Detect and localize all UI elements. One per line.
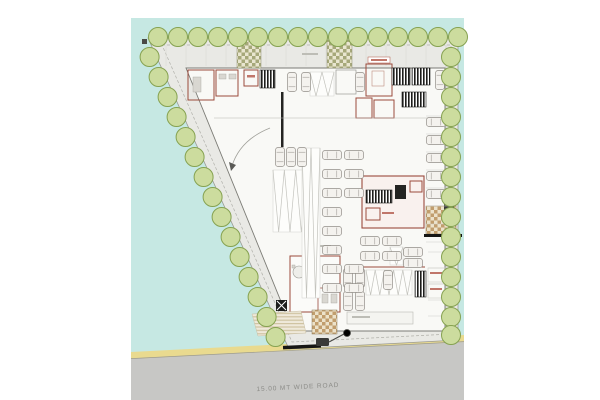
tree-icon [167, 108, 186, 127]
shear-wall [281, 92, 284, 147]
illegible-annotation [247, 75, 255, 78]
tree-icon [248, 288, 267, 307]
tree-icon [149, 68, 168, 87]
car-icon [276, 148, 285, 167]
illegible-annotation [430, 288, 442, 290]
wc-fixture [219, 74, 226, 79]
tree-icon [209, 28, 228, 47]
tree-icon [442, 188, 461, 207]
tree-icon [176, 128, 195, 147]
car-icon [345, 170, 364, 179]
paver-plaza-south [312, 310, 337, 334]
car-icon [323, 189, 342, 198]
transformer-icon [276, 300, 287, 311]
car-icon [323, 284, 342, 293]
car-icon [344, 292, 353, 311]
illegible-annotation [430, 272, 442, 274]
car-icon [384, 271, 393, 290]
tree-icon [442, 326, 461, 345]
tree-icon [221, 228, 240, 247]
car-icon [404, 248, 423, 257]
car-icon [323, 170, 342, 179]
tree-icon [189, 28, 208, 47]
barrier-arm-head [344, 330, 351, 337]
chair [292, 265, 295, 268]
tree-icon [230, 248, 249, 267]
tree-icon [442, 128, 461, 147]
tree-icon [169, 28, 188, 47]
empty-stall-band [310, 72, 334, 96]
tree-icon [442, 68, 461, 87]
tree-icon [442, 288, 461, 307]
tree-icon [203, 188, 222, 207]
tree-icon [269, 28, 288, 47]
car-icon [404, 259, 423, 268]
tree-icon [389, 28, 408, 47]
tree-icon [442, 48, 461, 67]
tree-icon [309, 28, 328, 47]
site-plan-drawing: 15.00 MT WIDE ROAD [0, 0, 600, 400]
empty-stall-band [302, 148, 320, 298]
tree-icon [212, 208, 231, 227]
tree-icon [185, 148, 204, 167]
illegible-annotation [382, 212, 394, 214]
illegible-annotation [352, 316, 370, 318]
car-icon [287, 148, 296, 167]
core-lift [395, 185, 406, 199]
tree-icon [442, 168, 461, 187]
tree-icon [140, 48, 159, 67]
tree-icon [442, 248, 461, 267]
staircase-north-3 [402, 92, 426, 107]
tree-icon [442, 88, 461, 107]
core-staircase [366, 190, 392, 203]
staircase-north-1 [392, 68, 410, 85]
tree-icon [329, 28, 348, 47]
guard-car-icon [316, 338, 329, 346]
car-icon [323, 227, 342, 236]
car-icon [345, 265, 364, 274]
tree-icon [409, 28, 428, 47]
staircase-north-2 [412, 68, 430, 85]
tree-icon [239, 268, 258, 287]
core-block [362, 176, 424, 228]
car-icon [323, 265, 342, 274]
car-icon [323, 246, 342, 255]
tree-icon [194, 168, 213, 187]
lift-block-north [260, 70, 275, 88]
car-icon [298, 148, 307, 167]
office-table [193, 77, 201, 92]
site-corner-post [142, 39, 147, 44]
tree-icon [442, 308, 461, 327]
tree-icon [442, 228, 461, 247]
illegible-annotation [371, 59, 387, 61]
tree-icon [442, 208, 461, 227]
wc-fixture [331, 294, 337, 303]
tree-icon [429, 28, 448, 47]
car-icon [361, 252, 380, 261]
tree-icon [158, 88, 177, 107]
tree-icon [266, 328, 285, 347]
car-icon [323, 208, 342, 217]
illegible-annotation [302, 53, 318, 55]
lift-block-south [415, 271, 426, 297]
tree-icon [369, 28, 388, 47]
car-icon [345, 284, 364, 293]
tree-icon [149, 28, 168, 47]
tree-icon [349, 28, 368, 47]
plan-canvas: 15.00 MT WIDE ROAD [0, 0, 600, 400]
car-icon [356, 292, 365, 311]
car-icon [288, 73, 297, 92]
car-icon [345, 151, 364, 160]
car-icon [361, 237, 380, 246]
tree-icon [442, 108, 461, 127]
tree-icon [249, 28, 268, 47]
car-icon [383, 252, 402, 261]
tree-icon [442, 148, 461, 167]
car-icon [383, 237, 402, 246]
car-icon [323, 151, 342, 160]
tree-icon [257, 308, 276, 327]
wc-fixture [322, 294, 328, 303]
car-icon [345, 189, 364, 198]
wc-fixture [229, 74, 236, 79]
tree-icon [442, 268, 461, 287]
car-icon [302, 73, 311, 92]
tree-icon [229, 28, 248, 47]
tree-icon [289, 28, 308, 47]
car-icon [356, 73, 365, 92]
tree-icon [449, 28, 468, 47]
